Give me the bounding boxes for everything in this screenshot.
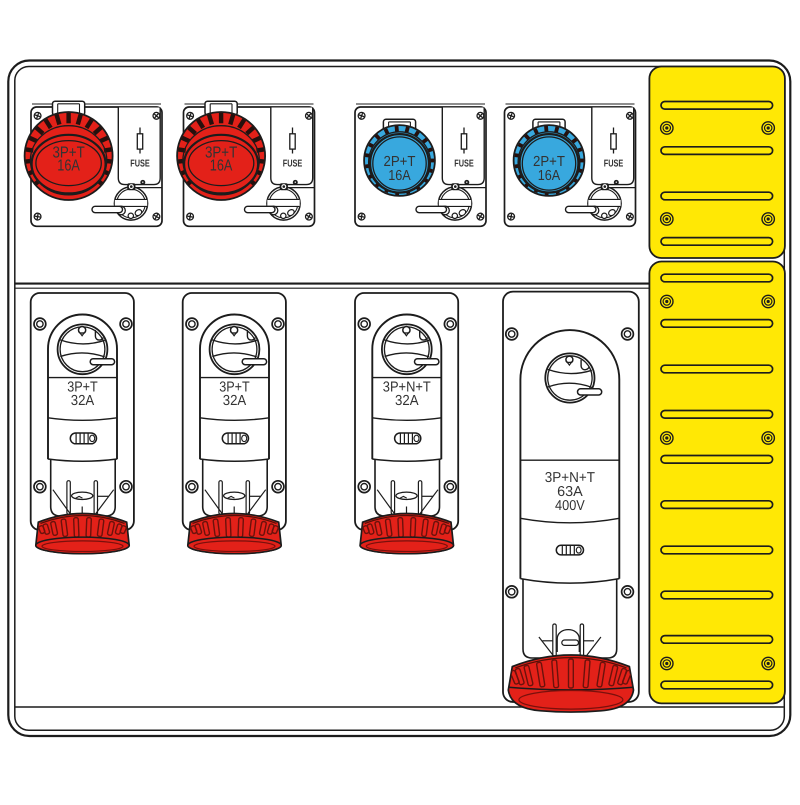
svg-text:FUSE: FUSE <box>130 159 150 170</box>
svg-text:16A: 16A <box>538 168 561 184</box>
svg-text:32A: 32A <box>71 393 95 409</box>
svg-text:16A: 16A <box>57 158 80 175</box>
svg-text:16A: 16A <box>388 168 411 184</box>
svg-text:32A: 32A <box>395 393 419 409</box>
svg-text:FUSE: FUSE <box>454 159 474 170</box>
svg-text:FUSE: FUSE <box>604 159 624 170</box>
svg-text:32A: 32A <box>223 393 247 409</box>
svg-text:FUSE: FUSE <box>283 159 303 170</box>
svg-text:16A: 16A <box>210 158 233 175</box>
svg-text:400V: 400V <box>555 498 585 514</box>
